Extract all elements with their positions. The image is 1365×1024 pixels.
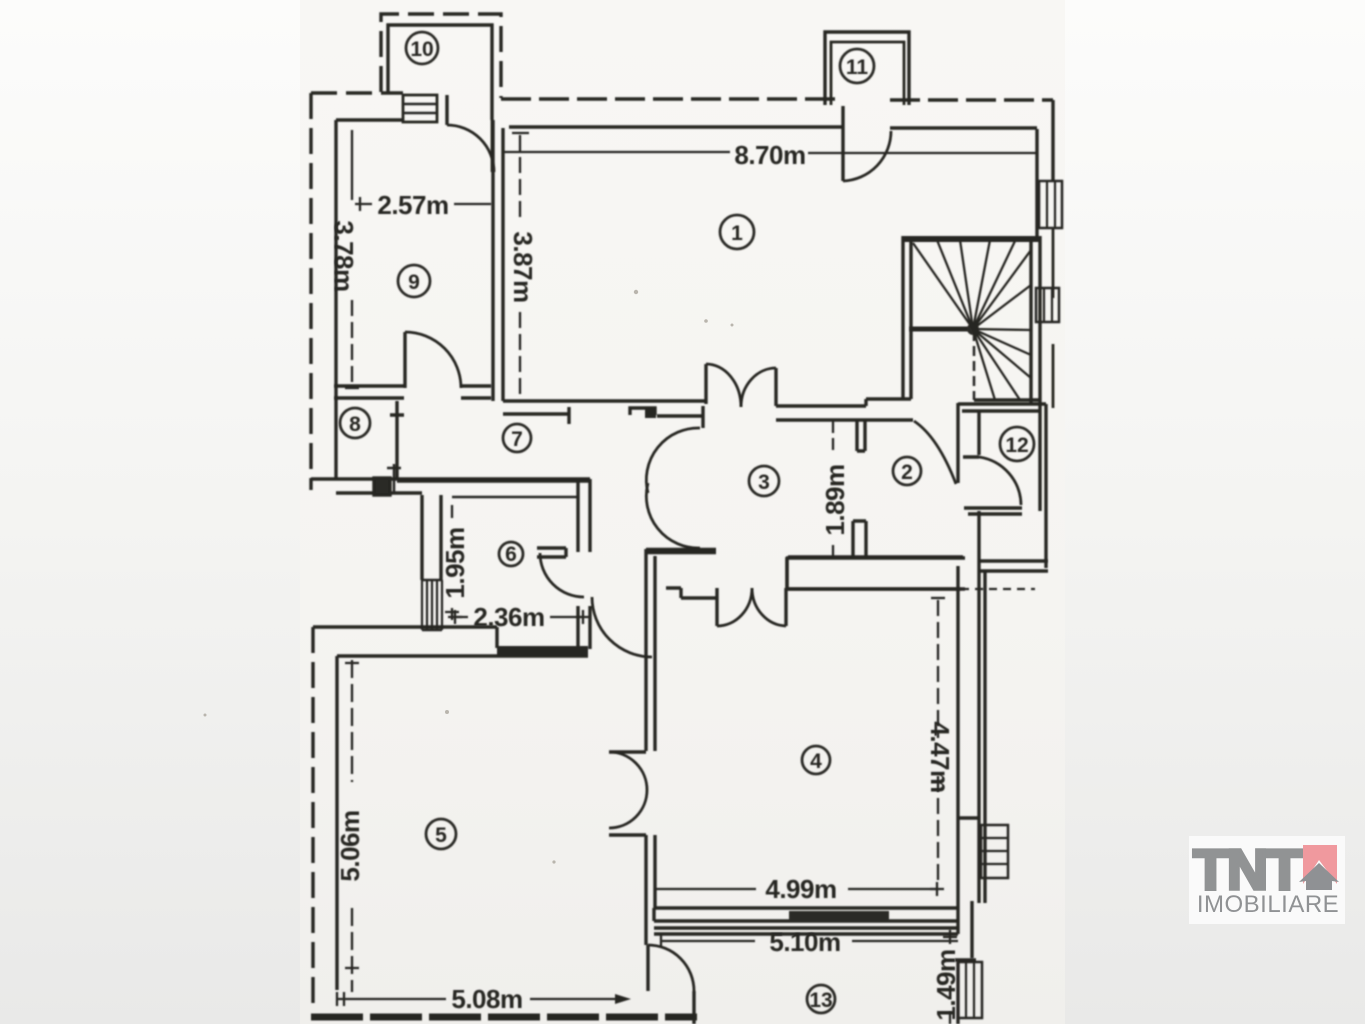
svg-text:13: 13	[809, 989, 832, 1012]
svg-text:8: 8	[349, 413, 361, 436]
svg-text:7: 7	[511, 428, 523, 451]
svg-text:1.89m: 1.89m	[820, 464, 850, 535]
svg-text:3.78m: 3.78m	[329, 220, 359, 291]
svg-text:1.95m: 1.95m	[440, 527, 470, 598]
svg-text:10: 10	[410, 38, 433, 61]
svg-text:5.10m: 5.10m	[769, 927, 840, 957]
svg-text:12: 12	[1005, 434, 1028, 457]
svg-text:1.49m: 1.49m	[931, 949, 961, 1020]
svg-text:5: 5	[435, 824, 447, 847]
svg-text:2.57m: 2.57m	[377, 190, 448, 220]
svg-text:3: 3	[758, 471, 770, 494]
svg-text:4: 4	[810, 750, 822, 773]
svg-text:8.70m: 8.70m	[734, 140, 805, 170]
svg-text:4.99m: 4.99m	[765, 874, 836, 904]
svg-text:4.47m: 4.47m	[925, 721, 955, 792]
svg-text:IMOBILIARE: IMOBILIARE	[1197, 891, 1339, 918]
svg-text:2.36m: 2.36m	[473, 602, 544, 632]
svg-text:5.06m: 5.06m	[335, 810, 365, 881]
svg-text:3.87m: 3.87m	[508, 231, 538, 302]
svg-text:5.08m: 5.08m	[451, 984, 522, 1014]
svg-text:9: 9	[408, 271, 420, 294]
svg-text:11: 11	[846, 56, 869, 79]
svg-text:6: 6	[505, 543, 517, 566]
svg-text:2: 2	[901, 461, 913, 484]
svg-text:1: 1	[731, 222, 743, 245]
